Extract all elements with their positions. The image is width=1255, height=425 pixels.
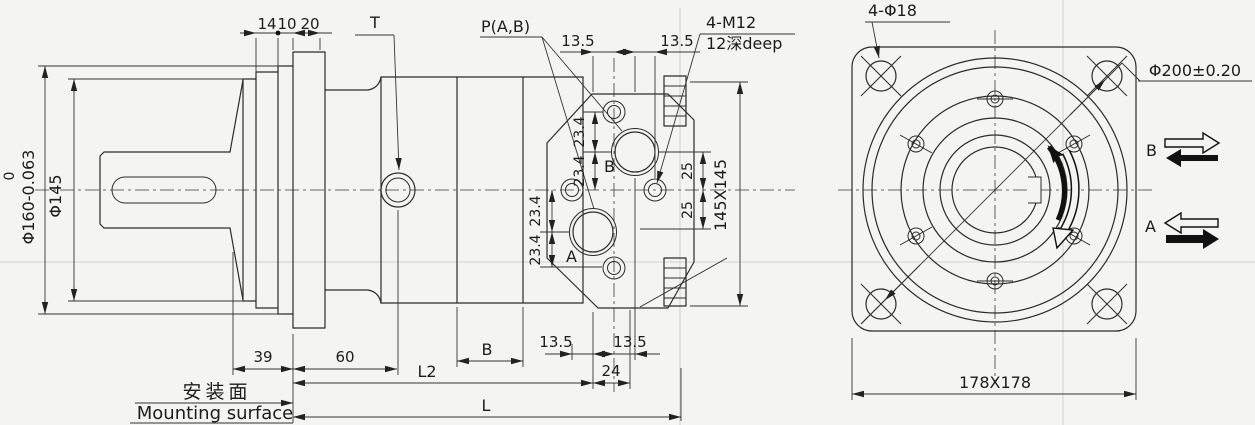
flow-b-label: B <box>1146 141 1157 160</box>
engineering-drawing-page: B A T P(A,B) 4-M12 12深deep <box>0 0 1255 425</box>
port-a-label: A <box>566 247 577 266</box>
rotation-arrow-solid <box>1049 147 1064 220</box>
port-bottom-dims: 13.5 13.5 <box>539 333 660 354</box>
dim-23_4-b-up: 23.4 <box>572 116 588 147</box>
dim-row-b: B <box>457 340 523 361</box>
b-in-flow-arrow <box>1166 149 1218 167</box>
dim-23_4-a-up: 23.4 <box>528 195 544 226</box>
dim-13_5-bottom-left: 13.5 <box>539 333 572 351</box>
t-port-leader: T <box>355 13 399 170</box>
dim-l2: L2 <box>417 362 436 381</box>
port-b-flow: B <box>1146 133 1219 167</box>
port-b-label: B <box>604 157 615 176</box>
dim-13_5-top-left: 13.5 <box>561 32 594 50</box>
dia-160-upper-tol: 0 <box>2 172 18 181</box>
cover-edge-line <box>640 258 727 307</box>
dim-13_5-bottom-right: 13.5 <box>613 333 646 351</box>
dim-13_5-top-right: 13.5 <box>660 32 693 50</box>
mounting-surface-callout: 安装面 Mounting surface <box>130 381 293 424</box>
dim-10: 10 <box>277 15 296 33</box>
front-view: Φ200±0.20 4-Φ18 178X178 B <box>838 1 1252 400</box>
corner-holes-label: 4-Φ18 <box>868 1 917 20</box>
a-out-flow-arrow <box>1165 213 1218 233</box>
flange-square-dim: 178X178 <box>852 338 1136 400</box>
p-ports-leader: P(A,B) <box>480 17 622 209</box>
flange-step-dims: 14 10 20 <box>240 15 332 76</box>
dim-24: 24 <box>601 362 620 380</box>
dim-row-39-60: 39 60 <box>233 348 397 369</box>
dim-23_4-b-down: 23.4 <box>572 155 588 186</box>
a-in-flow-arrow <box>1166 229 1219 249</box>
dim-l: L <box>482 396 491 415</box>
bore-keyway-mask <box>1028 177 1041 203</box>
side-view: B A T P(A,B) 4-M12 12深deep <box>2 13 795 424</box>
dim-14: 14 <box>257 15 276 33</box>
flow-a-label: A <box>1145 217 1156 236</box>
dim-39: 39 <box>253 348 272 366</box>
dim-20: 20 <box>300 15 319 33</box>
bolt-circle-label: Φ200±0.20 <box>1149 61 1241 80</box>
dim-23_4-a-down: 23.4 <box>528 234 544 265</box>
p-ports-label: P(A,B) <box>481 17 530 36</box>
face-square-dim: 145X145 <box>690 82 748 306</box>
t-port-label: T <box>369 13 380 32</box>
dim-row-l: L <box>293 396 681 417</box>
bolt-circle-dim: Φ200±0.20 <box>862 61 1252 323</box>
dim-b: B <box>482 340 493 359</box>
dia-145-label: Φ145 <box>46 174 65 217</box>
m12-spec-label: 4-M12 <box>706 13 756 32</box>
dim-145x145: 145X145 <box>711 159 730 231</box>
dim-178x178: 178X178 <box>959 373 1031 392</box>
mounting-surface-cn: 安装面 <box>182 381 251 403</box>
corner-holes-callout: 4-Φ18 <box>865 1 950 58</box>
dia-160-label: Φ160-0.063 <box>19 150 38 245</box>
port-b-offset-dims: 23.4 23.4 <box>572 112 611 190</box>
dim-25-down: 25 <box>680 201 696 219</box>
b-out-flow-arrow <box>1165 133 1219 153</box>
port-a-flow: A <box>1145 213 1219 249</box>
m12-depth-label: 12深deep <box>706 34 782 53</box>
port-face-plate: B A <box>547 76 727 308</box>
hydraulic-motor-drawing: B A T P(A,B) 4-M12 12深deep <box>0 0 1255 425</box>
port-a-circle <box>573 212 613 252</box>
page-grid-lines <box>0 0 1255 425</box>
port-b-circle <box>615 132 655 172</box>
dim-60: 60 <box>335 348 354 366</box>
mounting-surface-en: Mounting surface <box>137 403 294 424</box>
dim-25-up: 25 <box>680 162 696 180</box>
